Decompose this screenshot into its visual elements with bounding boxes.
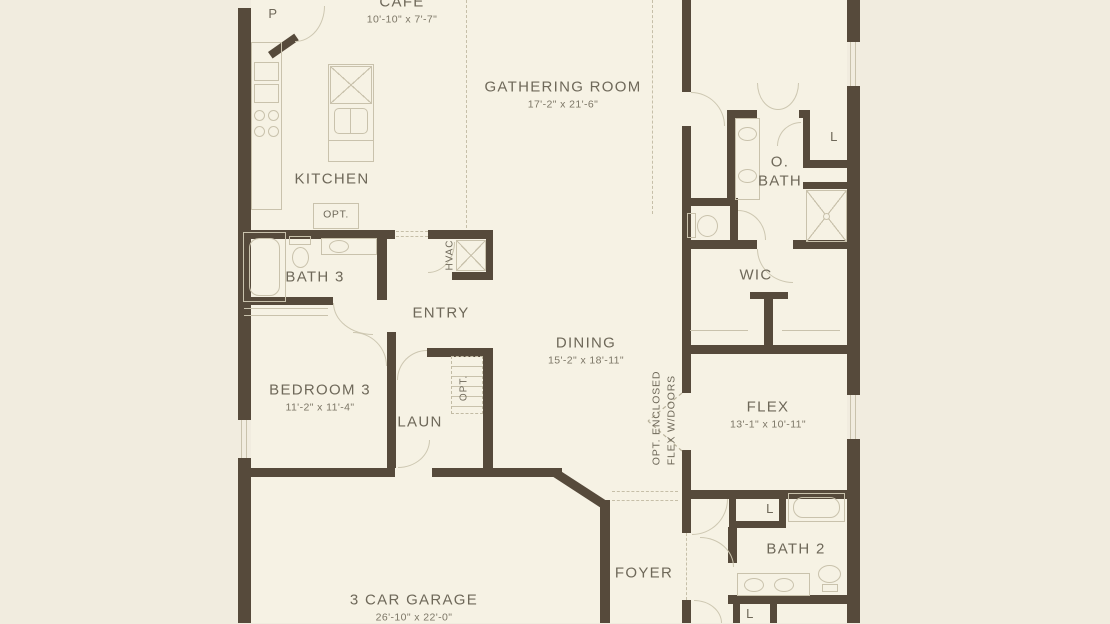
closet-rod <box>782 330 840 331</box>
room-name: O. <box>758 153 802 172</box>
label-linen-hall: L <box>746 606 754 622</box>
room-label-gathering: GATHERING ROOM 17'-2" x 21'-6" <box>484 79 641 112</box>
wall <box>803 182 847 189</box>
wall <box>803 160 860 168</box>
kitchen-sink <box>254 62 279 81</box>
room-label-bath2: BATH 2 <box>766 541 825 560</box>
window <box>850 395 856 439</box>
optional-gathering-boundary <box>466 0 467 228</box>
island-sink-divider <box>350 109 351 133</box>
note-line: OPT. ENCLOSED <box>651 371 663 465</box>
wall <box>728 595 860 604</box>
window <box>241 420 247 458</box>
closet-rod <box>690 330 748 331</box>
sink <box>744 578 764 592</box>
sink <box>738 127 757 141</box>
wall <box>432 468 562 477</box>
room-label-pantry: P <box>268 6 277 22</box>
window <box>850 42 856 86</box>
label-linen-bath2: L <box>766 501 774 517</box>
wall <box>764 295 773 350</box>
wall <box>729 521 786 528</box>
room-name: FLEX <box>747 399 790 416</box>
wall <box>682 354 691 393</box>
room-label-entry: ENTRY <box>412 305 469 324</box>
bathtub-basin <box>793 497 840 518</box>
wall <box>238 8 251 420</box>
wall <box>682 600 691 623</box>
room-name: BEDROOM 3 <box>269 382 371 399</box>
label-linen-obath: L <box>830 129 838 145</box>
room-label-garage: 3 CAR GARAGE 26'-10" x 22'-0" <box>350 592 478 624</box>
hvac-unit <box>456 240 486 271</box>
toilet-base <box>822 584 838 592</box>
room-label-bath3: BATH 3 <box>285 269 344 288</box>
label-laundry-opt: OPT. <box>459 375 470 401</box>
kitchen-sink <box>254 84 279 103</box>
cased-opening <box>686 533 687 600</box>
cooktop-burner <box>254 126 265 137</box>
room-label-bedroom3: BEDROOM 3 11'-2" x 11'-4" <box>269 382 371 415</box>
toilet-tank <box>687 213 696 238</box>
optional-opening <box>396 231 428 232</box>
room-dims: 17'-2" x 21'-6" <box>484 98 641 111</box>
room-dims: 11'-2" x 11'-4" <box>269 401 371 414</box>
cased-opening <box>612 500 678 501</box>
room-name: BATH <box>758 172 802 191</box>
room-name: CAFE <box>379 0 424 11</box>
wall <box>483 348 493 468</box>
toilet-bowl <box>697 215 718 237</box>
room-dims: 13'-1" x 10'-11" <box>730 418 806 431</box>
wall <box>847 0 860 42</box>
sink <box>774 578 794 592</box>
room-dims: 26'-10" x 22'-0" <box>350 611 478 624</box>
room-label-dining: DINING 15'-2" x 18'-11" <box>548 335 624 368</box>
wall <box>733 604 740 623</box>
room-dims: 15'-2" x 18'-11" <box>548 354 624 367</box>
label-flex-option-note: OPT. ENCLOSED FLEX W/DOORS <box>651 371 678 465</box>
wall <box>238 458 251 623</box>
wall <box>452 272 493 280</box>
wall <box>428 230 493 239</box>
wall <box>727 110 735 206</box>
room-label-kitchen: KITCHEN <box>295 171 370 190</box>
cooktop-burner <box>254 110 265 121</box>
room-label-foyer: FOYER <box>615 565 673 584</box>
room-dims: 10'-10" x 7'-7" <box>367 13 438 26</box>
toilet-tank <box>289 236 311 245</box>
cooktop-burner <box>268 110 279 121</box>
wall <box>682 0 691 92</box>
optional-gathering-boundary <box>652 0 653 214</box>
wall <box>682 240 757 249</box>
wall <box>387 332 396 468</box>
room-label-laundry: LAUN <box>397 414 442 433</box>
room-label-owners-bath: O. BATH <box>758 153 802 191</box>
room-label-flex: FLEX 13'-1" x 10'-11" <box>730 399 806 432</box>
room-name: DINING <box>556 335 616 352</box>
island-prep-area <box>330 66 372 104</box>
label-hvac: HVAC <box>445 239 456 270</box>
wall <box>682 490 735 499</box>
room-label-cafe: CAFE 10'-10" x 7'-7" <box>367 0 438 26</box>
wall <box>770 604 777 623</box>
room-name: GATHERING ROOM <box>484 79 641 96</box>
wall <box>682 345 860 354</box>
closet-shelf <box>244 308 328 316</box>
cooktop-burner <box>268 126 279 137</box>
wall <box>238 468 395 477</box>
bathtub-basin <box>249 238 280 296</box>
wall <box>600 500 610 623</box>
island-edge <box>329 140 373 141</box>
island-sink <box>334 108 368 134</box>
cased-opening <box>612 491 678 492</box>
shower-drain <box>823 213 830 220</box>
note-line: FLEX W/DOORS <box>666 371 678 465</box>
floor-plan: P CAFE 10'-10" x 7'-7" GATHERING ROOM 17… <box>0 0 1110 623</box>
optional-opening <box>396 236 428 237</box>
room-name: 3 CAR GARAGE <box>350 592 478 609</box>
toilet-bowl <box>818 565 841 583</box>
room-label-wic: WIC <box>739 267 772 286</box>
toilet-bowl <box>292 247 309 268</box>
sink <box>329 240 349 253</box>
sink <box>738 169 757 183</box>
label-kitchen-opt: OPT. <box>323 208 349 221</box>
wall <box>682 198 738 206</box>
wall <box>377 238 387 300</box>
